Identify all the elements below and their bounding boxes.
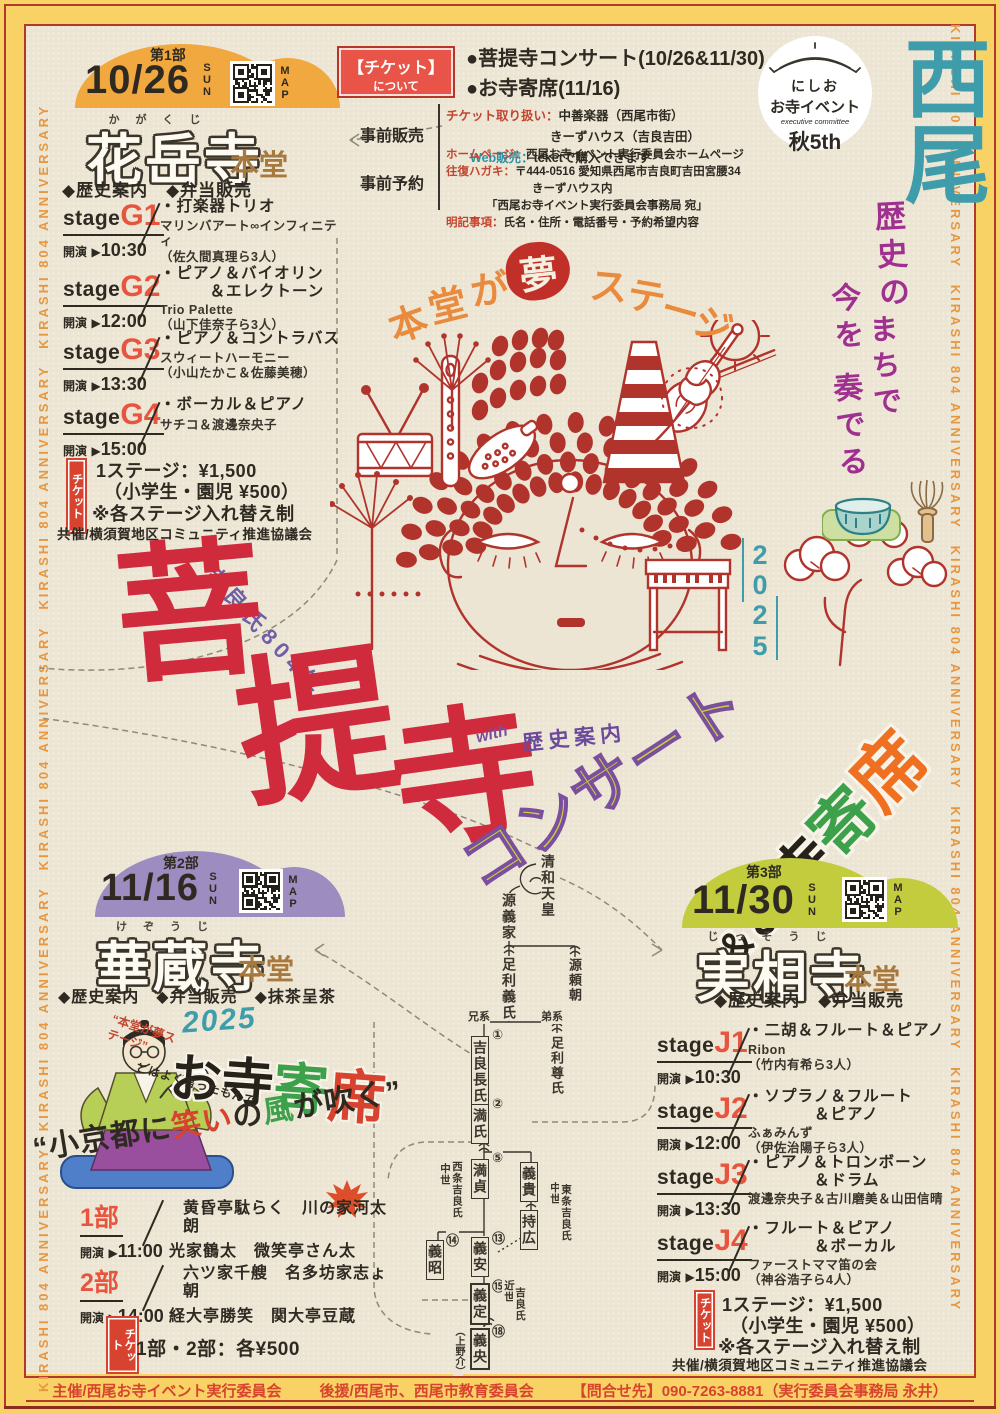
- group-line: Ribon: [748, 1043, 948, 1059]
- stage-row: stageG3 開演 ▶13:30: [63, 333, 164, 395]
- logo-edition: 秋5th: [758, 126, 872, 156]
- tree-node-yoshiaki: 義昭: [426, 1240, 444, 1280]
- tree-node-yoshiie: 源義家: [502, 893, 516, 941]
- stage-word: stage: [63, 207, 120, 230]
- digit: 2: [748, 540, 772, 570]
- stage-time: 15:00: [695, 1265, 741, 1285]
- stage-row: stageG4 開演 ▶15:00: [63, 398, 164, 460]
- part2-ticket-badge: チケット: [106, 1316, 139, 1374]
- part3-cosponsor: 共催/横須賀地区コミュニティ推進協議会: [672, 1354, 927, 1374]
- tree-label-younger-line: 弟系: [541, 1008, 563, 1024]
- temple-roof-icon: [768, 42, 862, 76]
- tree-node-yoshihisa: 義央: [470, 1328, 490, 1370]
- postcard-recipient: 「西尾お寺イベント実行委員会事務局 宛」: [486, 197, 744, 213]
- performer-line: 黄昏亭駄らく 川の家河太朗: [183, 1200, 393, 1237]
- program-line: ＆エレクトーン: [160, 283, 345, 301]
- stage-row: stageJ1 開演 ▶10:30: [657, 1026, 752, 1088]
- members-line: （小山たかこ＆佐藤美穂）: [160, 366, 345, 382]
- tree-node-yoshiyasu: 義安: [471, 1237, 489, 1277]
- nishio-title: 西尾: [894, 34, 984, 206]
- arrow-icon: ▶: [91, 316, 100, 330]
- bracket-line: [742, 538, 744, 602]
- stage-word: stage: [657, 1100, 714, 1123]
- required-info: 氏名・住所・電話番号・予約希望内容: [504, 217, 700, 229]
- program-line: ＆ボーカル: [748, 1238, 948, 1256]
- buddha-illustration: [330, 320, 790, 670]
- dream-char: 夢: [516, 242, 560, 301]
- presale-channel: 中善楽器（西尾市街）: [559, 109, 684, 123]
- group-line: ふぁみんず: [748, 1126, 948, 1142]
- part3-day: SUN: [806, 882, 817, 918]
- stage-program: ・二胡＆フルート＆ピアノ Ribon （竹内有希ら3人）: [748, 1022, 948, 1074]
- stage-program: ・フルート＆ピアノ ＆ボーカル ファーストママ笛の会 （神谷浩子ら4人）: [748, 1220, 948, 1289]
- arrow-icon: ▶: [91, 444, 100, 458]
- arrow-icon: ▶: [91, 245, 100, 259]
- drum-icon: [358, 383, 432, 476]
- homepage-label: ホームページ：: [446, 149, 526, 161]
- group-line: Trio Palette: [160, 303, 345, 319]
- tree-node-yoshisada: 義定: [470, 1283, 490, 1325]
- arrow-icon: ▶: [685, 1072, 694, 1086]
- program-line: ・ボーカル＆ピアノ: [160, 396, 345, 414]
- part3-ticket-badge: チケット: [694, 1290, 715, 1350]
- reserve-label: 事前予約: [360, 170, 424, 194]
- tree-label-tojo-kira: 東条吉良氏: [559, 1184, 574, 1242]
- stage-time: 12:00: [695, 1133, 741, 1153]
- tree-node-yoritomo: 源頼朝: [568, 958, 581, 1003]
- stage-word: stage: [657, 1232, 714, 1255]
- postcard-label: 往復ハガキ：: [446, 166, 515, 178]
- stage-row: stageJ3 開演 ▶13:30: [657, 1158, 752, 1220]
- part1-map-qr-code: [230, 61, 275, 106]
- tree-number: ①: [492, 1027, 503, 1043]
- divider: [438, 146, 440, 210]
- postcard-address2: きーずハウス内: [532, 180, 744, 196]
- catch-segment-red: 笑い: [169, 1102, 235, 1144]
- stage-program: ・打楽器トリオ マリンバアート∞インフィニティ （佐久間真理ら3人）: [160, 198, 345, 266]
- tree-number: ②: [492, 1096, 503, 1112]
- stage-row: stageJ2 開演 ▶12:00: [657, 1092, 752, 1154]
- digit: 0: [748, 570, 772, 600]
- tree-node-osauji: 吉良長氏: [471, 1036, 489, 1108]
- members-line: （竹内有希ら3人）: [748, 1058, 948, 1074]
- kaien-label: 開演: [80, 1311, 104, 1325]
- kaien-label: 開演: [63, 444, 87, 458]
- tree-node-seiwa: 清和天皇: [541, 854, 555, 918]
- part2-map-label: MAP: [287, 874, 298, 910]
- part2-hall-label: 本堂: [238, 948, 294, 988]
- members-line: （神谷浩子ら4人）: [748, 1273, 948, 1289]
- stage-word: stage: [657, 1034, 714, 1057]
- ticket-event-2: ●お寺寄席(11/16): [466, 72, 620, 101]
- kaien-label: 開演: [80, 1246, 104, 1260]
- part2-day: SUN: [207, 871, 218, 907]
- group-line: マリンバアート∞インフィニティ: [160, 219, 345, 250]
- footer-organizer: 主催/西尾お寺イベント実行委員会: [52, 1380, 281, 1401]
- stage-word: stage: [63, 406, 120, 429]
- tree-number: ⑤: [492, 1150, 503, 1166]
- bracket-line: [776, 596, 778, 660]
- kaien-label: 開演: [63, 245, 87, 259]
- program-line: ＆ドラム: [748, 1172, 958, 1190]
- logo-line3: executive committee: [758, 117, 872, 126]
- ticket-badge-sub: について: [339, 78, 453, 94]
- presale-channel: きーずハウス（吉良吉田）: [550, 126, 700, 145]
- group-line: ファーストママ笛の会: [748, 1258, 948, 1274]
- presale-label: 事前販売: [360, 122, 424, 146]
- reserve-details: ホームページ：西尾お寺イベント実行委員会ホームページ 往復ハガキ：〒444-05…: [446, 146, 744, 230]
- tree-number: ⑭: [446, 1230, 459, 1249]
- part1-date: 10/26: [85, 58, 190, 103]
- stage-row: stageJ4 開演 ▶15:00: [657, 1224, 752, 1286]
- program-names: 六ツ家千艘 名多坊家志ょ朝 経大亭勝笑 関大亭豆蔵: [183, 1265, 393, 1326]
- tree-node-takauji: 足利尊氏: [550, 1036, 563, 1096]
- arrow-icon: ▶: [685, 1138, 694, 1152]
- footer-contact: 【問合せ先】090-7263-8881（実行委員会事務局 永井）: [572, 1380, 948, 1401]
- kaien-label: 開演: [63, 316, 87, 330]
- tree-node-yoshitaka: 義貴: [520, 1162, 538, 1202]
- part1-date-banner: 第1部 10/26 SUN MAP: [75, 44, 340, 108]
- performer-line: 六ツ家千艘 名多坊家志ょ朝: [183, 1265, 393, 1302]
- program-line: ・ソプラノ＆フルート: [748, 1088, 948, 1106]
- ticket-info-badge: 【チケット】 について: [337, 46, 455, 98]
- part2-ticket-price: 1部・2部：各¥500: [136, 1334, 300, 1361]
- part2-map-qr-code: [239, 869, 283, 913]
- program-line: ・ピアノ＆バイオリン: [160, 265, 345, 283]
- stage-word: stage: [63, 278, 120, 301]
- title-2025: 2 0 2 5: [748, 540, 772, 661]
- digit: 2: [748, 600, 772, 630]
- group-line: スウィートハーモニー: [160, 351, 345, 367]
- program-number: 2部: [80, 1269, 119, 1297]
- catch-segment: の: [230, 1097, 266, 1134]
- stage-program: ・ボーカル＆ピアノ サチコ＆渡邊奈央子: [160, 396, 345, 433]
- tree-node-yoshiuji: 足利義氏: [502, 957, 516, 1021]
- program-line: ・打楽器トリオ: [160, 198, 345, 216]
- program-time: 11:00: [118, 1241, 163, 1261]
- event-logo: にしお お寺イベント executive committee 秋5th: [758, 36, 872, 150]
- event-poster: KIRASHI 804 ANNIVERSARY KIRASHI 804 ANNI…: [0, 0, 1000, 1414]
- tree-node-mitsuuji: 満氏: [471, 1104, 489, 1144]
- tree-number: ⑬: [492, 1228, 505, 1247]
- group-line: 渡邊奈央子＆古川磨美＆山田信晴: [748, 1192, 958, 1208]
- part3-map-qr-code: [842, 877, 887, 922]
- stage-program: ・ピアノ＆バイオリン ＆エレクトーン Trio Palette （山下佳奈子ら3…: [160, 265, 345, 334]
- arrow-icon: ▶: [685, 1270, 694, 1284]
- program-line: ＆ピアノ: [748, 1106, 948, 1124]
- arrow-icon: ▶: [685, 1204, 694, 1218]
- kaien-label: 開演: [63, 379, 87, 393]
- performer-line: 経大亭勝笑 関大亭豆蔵: [169, 1308, 393, 1326]
- program-line: ・二胡＆フルート＆ピアノ: [748, 1022, 948, 1040]
- postcard-address: 〒444-0516 愛知県西尾市吉良町吉田宮腰34: [515, 166, 741, 178]
- tagline-col4: 奏でる: [821, 371, 873, 485]
- logo-line1: にしお: [758, 76, 872, 96]
- program-line: ・ピアノ＆トロンボーン: [748, 1154, 958, 1172]
- digit: 5: [748, 631, 772, 661]
- part3-features: ◆歴史案内 ◆弁当販売: [714, 986, 904, 1011]
- part1-day: SUN: [201, 62, 212, 98]
- members-line: （佐久間真理ら3人）: [160, 250, 345, 266]
- kaien-label: 開演: [657, 1270, 681, 1284]
- catch-segment-green: 風: [261, 1092, 297, 1129]
- tree-node-mitsusada: 満貞: [471, 1159, 489, 1199]
- part2-date: 11/16: [101, 867, 199, 910]
- arrow-icon: ▶: [91, 379, 100, 393]
- program-number: 1部: [80, 1204, 119, 1232]
- stage-row: stageG2 開演 ▶12:00: [63, 270, 164, 332]
- ticket-badge-title: 【チケット】: [339, 54, 453, 78]
- stage-time: 10:30: [695, 1067, 741, 1087]
- part3-date-banner: 第3部 11/30 SUN MAP: [682, 858, 958, 928]
- ticket-event-1: ●菩提寺コンサート(10/26&11/30): [466, 42, 765, 71]
- program-line: ・ピアノ＆コントラバス: [160, 330, 345, 348]
- stage-word: stage: [63, 341, 120, 364]
- stage-program: ・ソプラノ＆フルート ＆ピアノ ふぁみんず （伊佐治陽子ら3人）: [748, 1088, 948, 1157]
- title-kanji-2: 提: [228, 638, 409, 819]
- tree-label-kira: 吉良氏: [513, 1287, 528, 1322]
- tree-label-elder-line: 兄系: [468, 1008, 490, 1024]
- part3-date: 11/30: [692, 878, 795, 923]
- stage-time: 13:30: [695, 1199, 741, 1219]
- tagline-col1: 歴史の: [864, 199, 915, 315]
- stage-row: stageG1 開演 ▶10:30: [63, 199, 164, 261]
- tree-label-kozukenosuke: （上野介）: [453, 1326, 463, 1376]
- part1-map-label: MAP: [279, 65, 290, 101]
- tree-node-mochihiro: 持広: [520, 1210, 538, 1250]
- tree-label-saijo-kira: 西条吉良氏: [450, 1161, 465, 1219]
- stage-program: ・ピアノ＆トロンボーン ＆ドラム 渡邊奈央子＆古川磨美＆山田信晴: [748, 1154, 958, 1207]
- part2-date-banner: 第2部 11/16 SUN MAP: [95, 851, 345, 917]
- tree-number: ⑱: [492, 1321, 505, 1340]
- teabowl-whisk-icon: [822, 476, 972, 546]
- arc-char: ス: [588, 254, 631, 312]
- logo-line2: お寺イベント: [758, 96, 872, 117]
- arrow-icon: ▶: [108, 1246, 117, 1260]
- stage-program: ・ピアノ＆コントラバス スウィートハーモニー （小山たかこ＆佐藤美穂）: [160, 330, 345, 382]
- part2-features: ◆歴史案内 ◆弁当販売 ◆抹茶呈茶: [58, 983, 336, 1007]
- required-info-label: 明記事項：: [446, 217, 504, 229]
- kaien-label: 開演: [657, 1138, 681, 1152]
- footer: 主催/西尾お寺イベント実行委員会 後援/西尾市、西尾市教育委員会 【問合せ先】0…: [0, 1380, 1000, 1401]
- kaien-label: 開演: [657, 1072, 681, 1086]
- program-names: 黄昏亭駄らく 川の家河太朗 光家鶴太 微笑亭さん太: [183, 1200, 393, 1261]
- performer-line: 光家鶴太 微笑亭さん太: [169, 1243, 393, 1261]
- homepage: 西尾お寺イベント実行委員会ホームページ: [526, 149, 744, 161]
- stage-word: stage: [657, 1166, 714, 1189]
- part3-map-label: MAP: [892, 882, 903, 918]
- tagline-col3: 今を: [819, 281, 868, 358]
- program-line: ・フルート＆ピアノ: [748, 1220, 948, 1238]
- group-line: サチコ＆渡邊奈央子: [160, 418, 345, 434]
- kaien-label: 開演: [657, 1204, 681, 1218]
- footer-support: 後援/西尾市、西尾市教育委員会: [320, 1380, 534, 1401]
- presale-channel-label: チケット取り扱い：: [446, 109, 559, 123]
